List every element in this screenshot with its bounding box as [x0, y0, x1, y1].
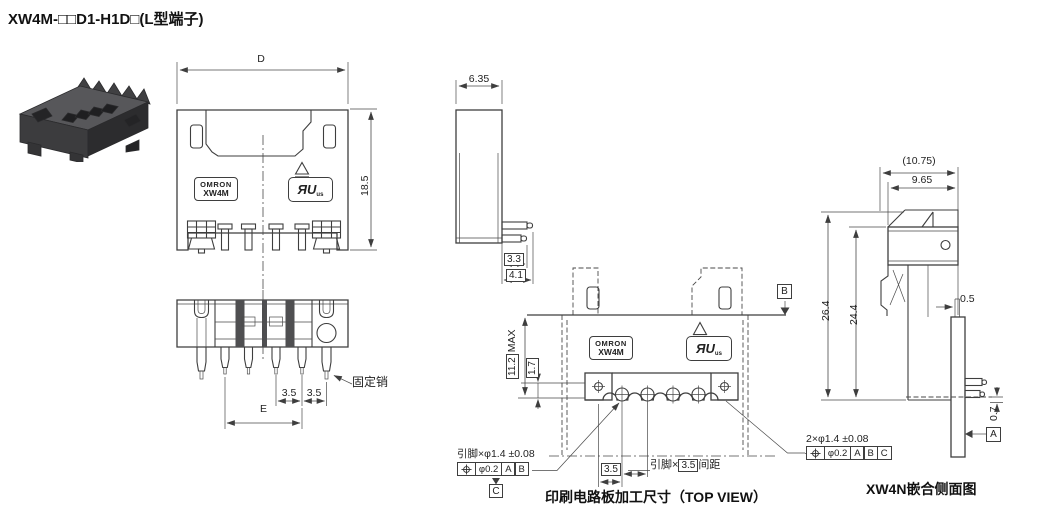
mating-view-linework: [805, 167, 1003, 457]
datum-b-box: B: [777, 284, 792, 299]
pin-span-label: E: [225, 404, 302, 416]
pin-pitch-a-label: 3.5: [276, 388, 302, 400]
omron-logo-badge: OMRON XW4M: [194, 177, 238, 201]
datasheet-drawing-page: XW4M-□□D1-H1D□(L型端子): [0, 0, 1038, 526]
datum-ref-2: B: [514, 462, 528, 476]
top-view-caption: 印刷电路板加工尺寸（TOP VIEW）: [545, 487, 767, 507]
front-height-dim-label: 18.5: [360, 176, 372, 196]
tolerance-value: φ0.2: [824, 446, 851, 460]
side-pin-short-dim-label: 3.3: [504, 253, 524, 266]
datum-a-box: A: [986, 427, 1001, 442]
omron-logo-badge-topview: OMRON XW4M: [589, 336, 633, 360]
side-width-dim-label: 6.35: [455, 74, 503, 86]
mating-inner-width-label: 9.65: [887, 175, 957, 187]
mating-pin-offset-label: 0.7: [989, 406, 1001, 421]
position-tolerance-icon: [457, 462, 476, 476]
mating-position-tolerance-frame: φ0.2 A B C: [806, 446, 892, 460]
front-width-dim-label: D: [176, 54, 346, 66]
ul-mark-suffix: us: [316, 192, 323, 198]
pin-pitch-note: 引脚×3.5间距: [650, 459, 720, 472]
mating-view-caption: XW4N嵌合侧面图: [866, 479, 976, 499]
side-pin-long-dim-label: 4.1: [506, 269, 526, 282]
pin-pitch-b-label: 3.5: [301, 388, 327, 400]
position-tolerance-icon: [806, 446, 825, 460]
board-height-max-label: 11.2MAX: [506, 330, 519, 380]
datum-ref-1: A: [501, 462, 515, 476]
fixing-pin-label: 固定销: [352, 376, 388, 389]
pad-offset-label: 1.7: [526, 358, 539, 378]
ul-recognized-mark-icon-topview: ЯU us: [686, 336, 732, 361]
datum-c-box: C: [489, 484, 503, 498]
ul-recognized-mark-icon: ЯU us: [288, 177, 333, 202]
datum-ref-2: B: [863, 446, 877, 460]
model-text: XW4M: [203, 189, 229, 198]
mating-tab-thickness-label: 0.5: [960, 294, 975, 306]
tolerance-value: φ0.2: [475, 462, 502, 476]
mating-overall-width-label: (10.75): [879, 156, 959, 168]
position-tolerance-frame: φ0.2 A B: [457, 462, 529, 476]
mating-pin-hole-note: 2×φ1.4 ±0.08: [806, 434, 869, 446]
front-view-linework: [177, 62, 377, 290]
ul-mark-text: ЯU: [298, 183, 317, 196]
datum-ref-1: A: [850, 446, 864, 460]
mating-total-height-label: 26.4: [821, 301, 833, 321]
hole-pitch-dim-label: 3.5: [601, 463, 621, 476]
mating-body-height-label: 24.4: [849, 305, 861, 325]
pin-hole-note: 引脚×φ1.4 ±0.08: [457, 449, 535, 461]
datum-ref-3: C: [877, 446, 892, 460]
